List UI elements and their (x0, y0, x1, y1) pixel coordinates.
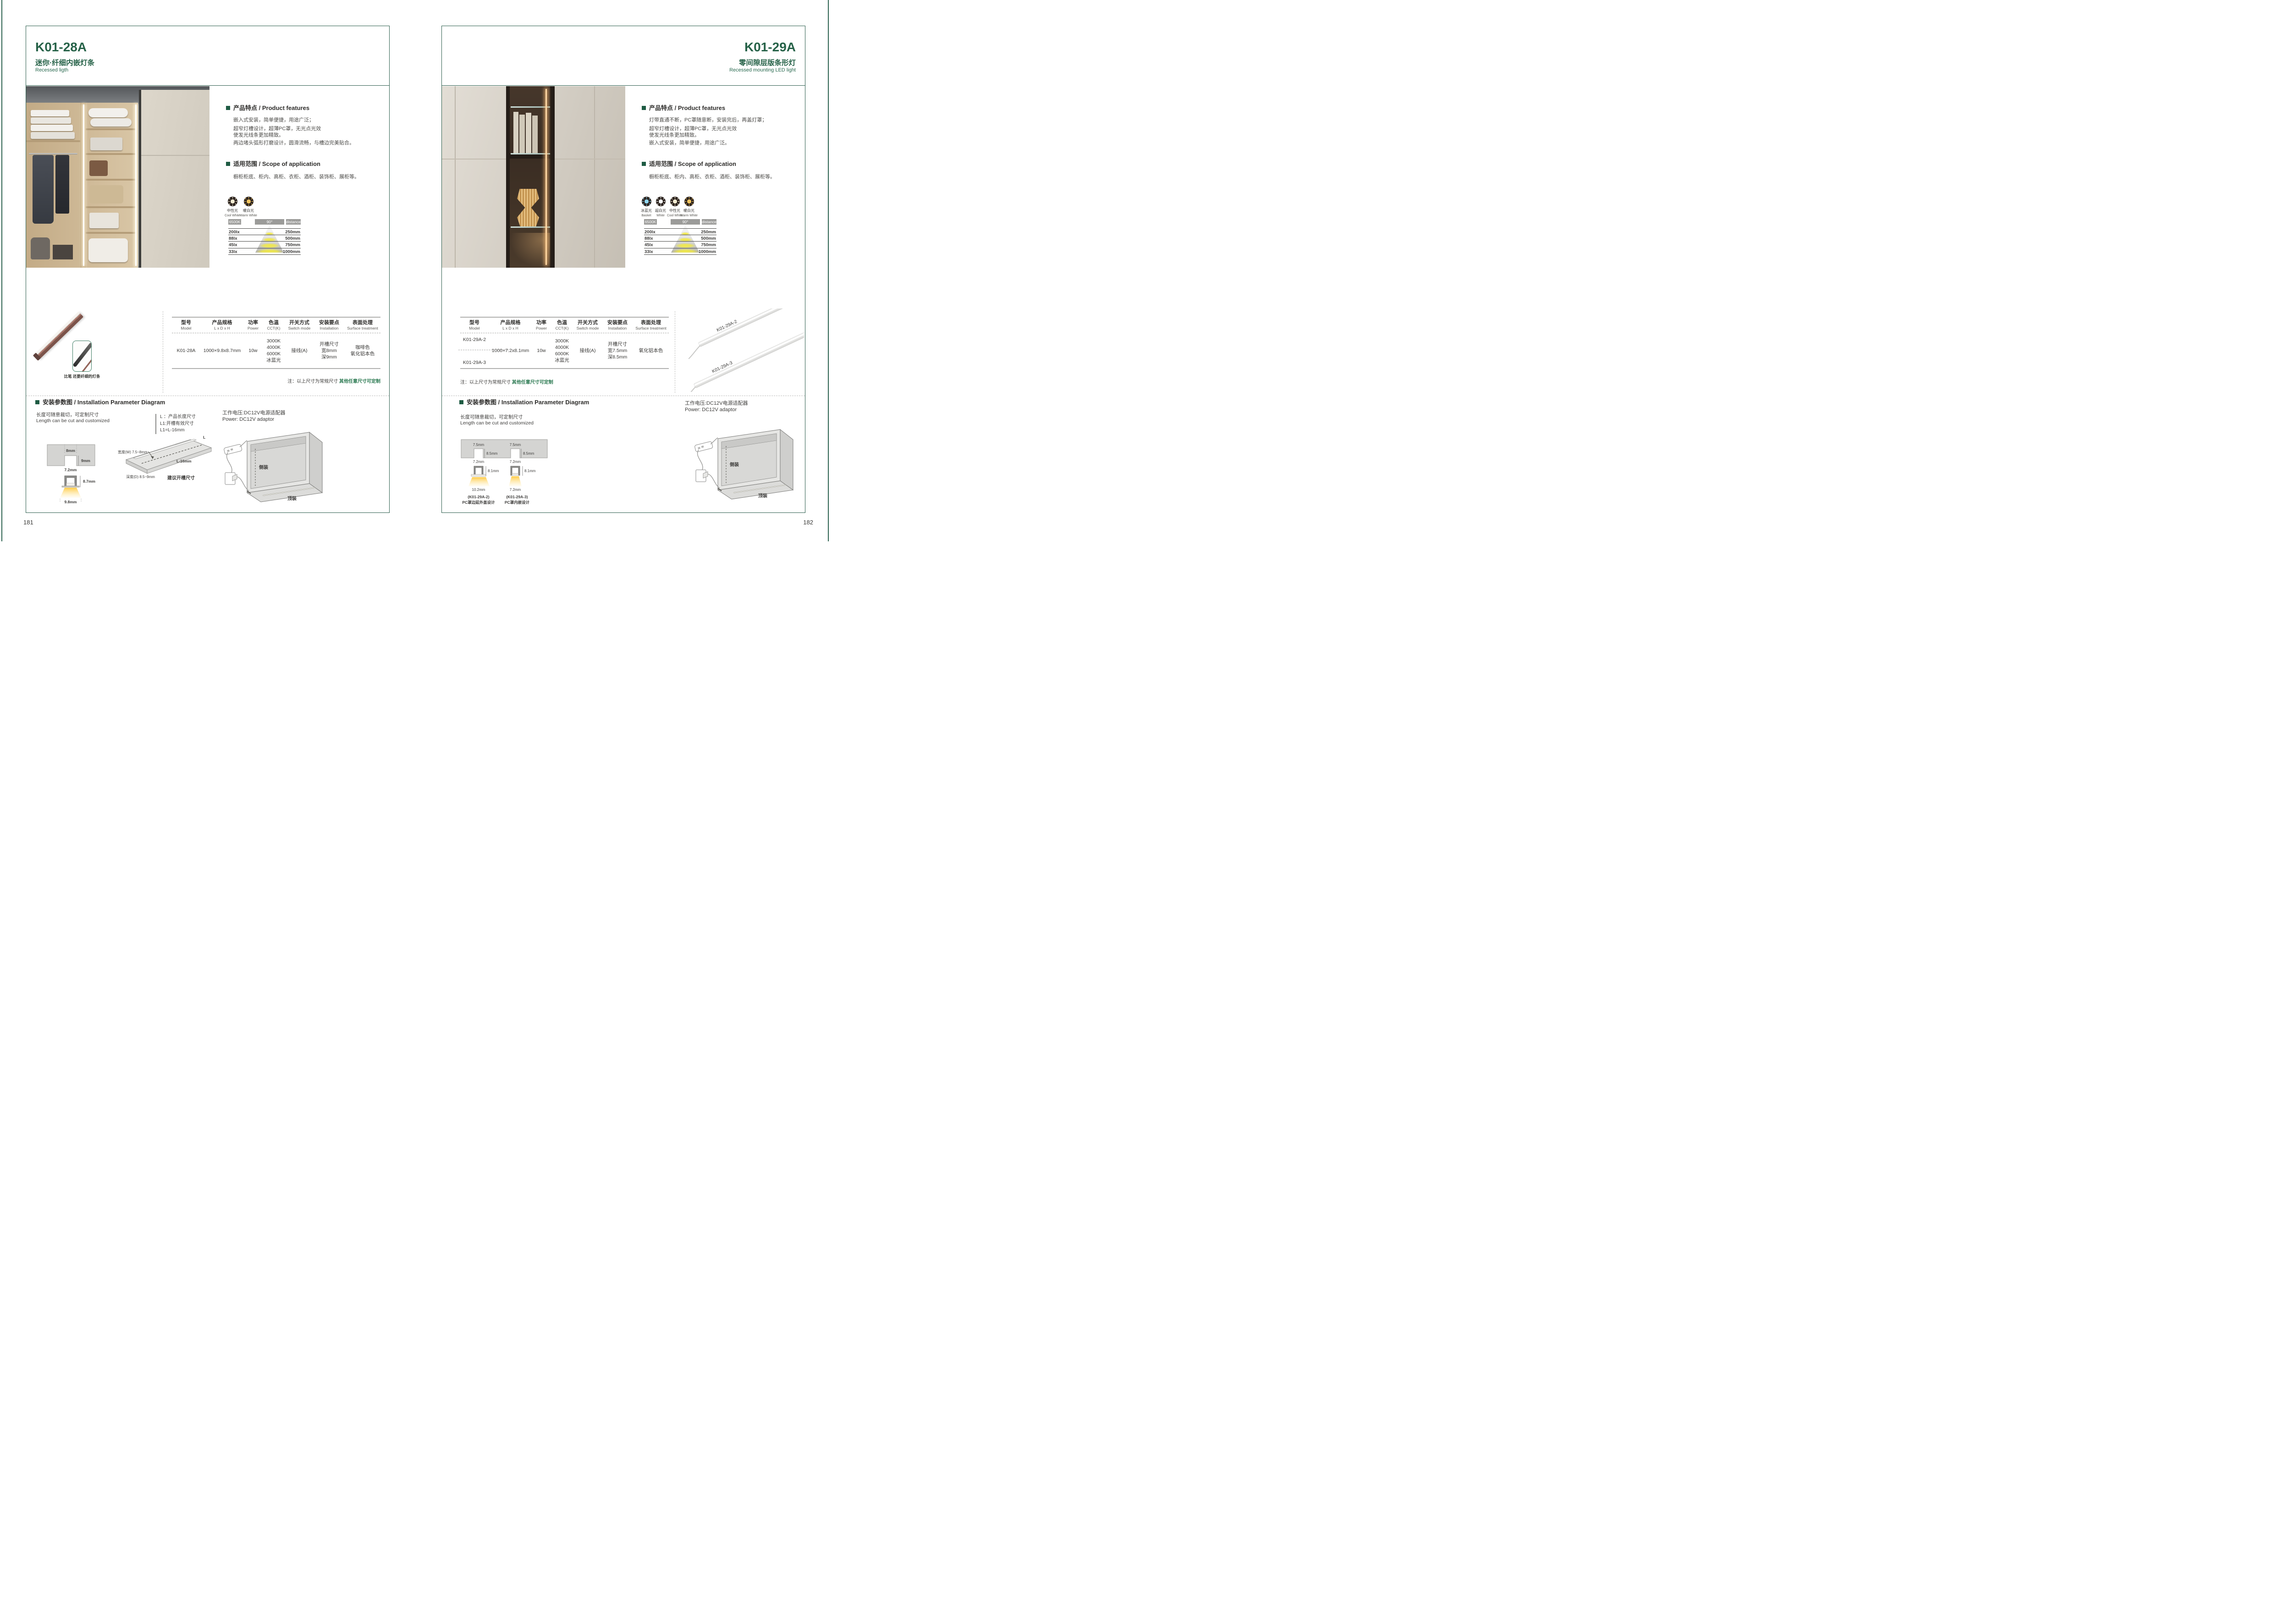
garment (55, 155, 69, 214)
chart-rows: 200lx250mm 88lx500mm 45lx750mm 33lx1000m… (228, 228, 301, 255)
cell-model: K01-28A (172, 347, 200, 354)
shelf (86, 179, 136, 181)
catalog-spread: K01-28A 迷你·纤细内嵌灯条 Recessed ligth (0, 0, 830, 541)
feature-line: 使发光线条更加精致。 (233, 131, 284, 138)
lux-value: 88lx (645, 236, 653, 241)
page-number: 182 (803, 519, 813, 526)
col-header-switch: 开关方式Switch mode (285, 320, 314, 331)
length-legend: L ：产品长度尺寸L1:开槽有效尺寸L1=L-16mm (155, 414, 196, 434)
svg-text:(K01-29A-3): (K01-29A-3) (506, 495, 528, 499)
distance-header: distance (702, 219, 716, 225)
svg-text:8.7mm: 8.7mm (83, 479, 95, 484)
lux-value: 45lx (229, 242, 237, 248)
beam-angle-header: 90° (671, 219, 700, 225)
niche-divider (510, 154, 550, 159)
distance-value: 1000mm (699, 249, 716, 254)
section-separator (26, 396, 389, 396)
col-header-install: 安装要点Installation (602, 320, 633, 331)
cell-models: K01-29A-2 K01-29A-3 (460, 335, 489, 367)
led-strip-light (135, 105, 137, 266)
cell-spec: 1000×9.8x8.7mm (200, 347, 244, 354)
icon-label-cn: 暖白光 (238, 208, 259, 213)
table-body-row: K01-29A-2 K01-29A-3 1000×7.2x8.1mm 10w 3… (460, 333, 669, 369)
table-header-row: 型号Model 产品规格L x D x H 功率Power 色温CCT(K) 开… (172, 317, 380, 333)
svg-text:PC罩边延外盖设计: PC罩边延外盖设计 (462, 500, 495, 505)
svg-text:8.5mm: 8.5mm (486, 451, 498, 456)
groove-cross-section-diagram: 8mm 9mm 7.2mm 8.7mm 9.8mm (39, 435, 103, 504)
double-cross-section-diagram: 7.5mm 7.5mm 8.5mm 8.5mm 7.2mm 7.2mm 8.1m… (459, 433, 551, 509)
pen-comparison-inset (72, 341, 92, 372)
col-header-spec: 产品规格L x D x H (200, 320, 244, 331)
length-note-en: Length can be cut and customized (460, 420, 534, 426)
panel-seam (442, 159, 509, 160)
table-note: 注：以上尺寸为常规尺寸 其他任意尺寸可定制 (460, 378, 553, 385)
cell-surface: 咖啡色氧化铝本色 (345, 344, 380, 357)
col-header-surface: 表面处理Surface treatment (345, 320, 380, 331)
chart-row: 33lx1000mm (644, 248, 716, 254)
section-separator (442, 396, 805, 396)
cell-cct: 3000K4000K 6000K冰蓝光 (262, 338, 285, 363)
install-title: 安装参数图 / Installation Parameter Diagram (43, 397, 165, 406)
power-note-cn: 工作电压:DC12V电源适配器 (222, 409, 286, 416)
section-bullet (226, 162, 230, 166)
suit (33, 155, 54, 224)
lux-value: 200lx (645, 230, 656, 235)
illuminance-chart: 6500K 90° distance 200lx250mm 88lx500mm … (228, 219, 301, 256)
svg-text:宽度(W) 7.5~8mm: 宽度(W) 7.5~8mm (118, 450, 148, 454)
cabinet-install-diagram: 侧装 顶装 (219, 423, 331, 511)
panel-seam (554, 159, 625, 160)
svg-text:L-16mm: L-16mm (176, 459, 192, 463)
feature-line: 两边堵头弧形打磨设计，圆滑流畅，与槽边完美贴合。 (233, 139, 354, 146)
left-edge-line (1, 0, 2, 541)
svg-text:侧装: 侧装 (730, 462, 739, 468)
sun-icon (656, 197, 666, 206)
section-bullet (642, 162, 646, 166)
col-header-surface: 表面处理Surface treatment (633, 320, 669, 331)
svg-text:7.2mm: 7.2mm (510, 460, 521, 464)
towel (31, 132, 75, 139)
distance-header: distance (286, 219, 301, 225)
shelf (26, 140, 80, 142)
section-bullet (459, 400, 463, 404)
feature-line: 使发光线条更加精致。 (649, 131, 700, 138)
cell-spec: 1000×7.2x8.1mm (489, 347, 532, 354)
page-subtitle-en: Recessed ligth (35, 67, 68, 73)
svg-text:8.1mm: 8.1mm (488, 469, 499, 473)
lux-value: 200lx (229, 230, 240, 235)
sun-icon (684, 197, 694, 206)
features-title: 产品特点 / Product features (649, 103, 725, 112)
distance-value: 750mm (701, 242, 716, 248)
towels (89, 213, 119, 228)
col-header-install: 安装要点Installation (314, 320, 345, 331)
cabinet-install-diagram: 侧装 顶装 (689, 420, 802, 508)
book (532, 116, 538, 154)
sun-icon (670, 197, 680, 206)
distance-value: 1000mm (283, 249, 300, 254)
glass-shelf (511, 106, 550, 108)
chart-row: 45lx750mm (644, 241, 716, 248)
power-note-en: Power: DC12V adaptor (222, 417, 274, 422)
svg-text:8mm: 8mm (66, 448, 75, 453)
glass-shelf (511, 226, 550, 228)
chart-row: 88lx500mm (644, 235, 716, 241)
cell-power: 10w (244, 347, 262, 354)
vertical-dashed-separator (163, 311, 163, 393)
feature-line: 嵌入式安装，简单便捷，用途广泛。 (649, 139, 730, 146)
svg-text:L: L (203, 435, 205, 440)
chart-row: 200lx250mm (644, 228, 716, 235)
distance-value: 500mm (285, 236, 300, 241)
scope-title: 适用范围 / Scope of application (233, 159, 320, 168)
svg-text:9mm: 9mm (81, 458, 90, 463)
box (53, 245, 73, 259)
section-bullet (642, 106, 646, 110)
shelf (86, 153, 136, 155)
svg-text:顶装: 顶装 (758, 493, 767, 499)
cell-install: 开槽尺寸宽8mm深9mm (314, 341, 345, 360)
features-title: 产品特点 / Product features (233, 103, 309, 112)
svg-text:(K01-29A-2): (K01-29A-2) (468, 495, 489, 499)
book (513, 112, 518, 154)
sliding-door (139, 90, 209, 268)
cell-install: 开槽尺寸宽7.5mm深8.5mm (602, 341, 633, 360)
col-header-power: 功率Power (244, 320, 262, 331)
svg-text:8.5mm: 8.5mm (523, 451, 534, 456)
svg-text:PC罩内嵌设计: PC罩内嵌设计 (505, 500, 530, 505)
table-body-row: K01-28A 1000×9.8x8.7mm 10w 3000K4000K 60… (172, 333, 380, 369)
scope-text: 橱柜柜底、柜内、高柜、衣柜、酒柜、装饰柜、展柜等。 (649, 173, 775, 180)
warm-white-icon: 暖白光 Warm White (679, 197, 699, 217)
cell-switch: 接线(A) (285, 347, 314, 354)
feature-line: 嵌入式安装，简单便捷，用途广泛； (233, 116, 314, 123)
svg-text:7.2mm: 7.2mm (65, 468, 77, 472)
lux-value: 33lx (645, 249, 653, 254)
panel-seam (455, 86, 456, 268)
warm-white-icon: 暖白光 Warm White (238, 197, 259, 217)
sun-icon (642, 197, 651, 206)
feature-line: 灯带直通不断，PC罩随意断，安装完后，再盖灯罩； (649, 116, 767, 123)
svg-text:侧装: 侧装 (259, 464, 268, 470)
sun-icon (228, 197, 237, 206)
bag (31, 237, 50, 259)
distance-value: 500mm (701, 236, 716, 241)
page-subtitle-cn: 迷你·纤细内嵌灯条 (35, 57, 94, 67)
pillow (88, 108, 128, 117)
col-header-cct: 色温CCT(K) (551, 320, 573, 331)
col-header-power: 功率Power (532, 320, 551, 331)
warm-glow (510, 233, 550, 268)
distance-value: 750mm (285, 242, 300, 248)
page-title: K01-28A (35, 40, 87, 55)
door-seam (141, 155, 209, 156)
install-title: 安装参数图 / Installation Parameter Diagram (467, 397, 589, 406)
towel (31, 125, 73, 131)
spec-table: 型号Model 产品规格L x D x H 功率Power 色温CCT(K) 开… (460, 317, 669, 369)
cell-switch: 接线(A) (573, 347, 602, 354)
glass-shelf (511, 153, 550, 154)
length-note-cn: 长度可随意裁切，可定制尺寸 (460, 413, 523, 420)
col-header-cct: 色温CCT(K) (262, 320, 285, 331)
col-header-model: 型号Model (460, 320, 489, 331)
table-header-row: 型号Model 产品规格L x D x H 功率Power 色温CCT(K) 开… (460, 317, 669, 333)
header-rule (26, 85, 389, 86)
chart-rows: 200lx250mm 88lx500mm 45lx750mm 33lx1000m… (644, 228, 716, 255)
sun-icon (244, 197, 253, 206)
cct-header: 6500K (228, 219, 241, 225)
svg-text:深度(D) 8.5~9mm: 深度(D) 8.5~9mm (126, 474, 155, 479)
chart-row: 33lx1000mm (228, 248, 301, 254)
svg-text:建议开槽尺寸: 建议开槽尺寸 (167, 475, 195, 481)
beam-angle-header: 90° (255, 219, 284, 225)
length-note-cn: 长度可随意裁切，可定制尺寸 (36, 411, 99, 418)
cct-header: 6500K (644, 219, 657, 225)
power-note-cn: 工作电压:DC12V电源适配器 (685, 399, 748, 407)
chart-row: 45lx750mm (228, 241, 301, 248)
svg-text:7.2mm: 7.2mm (473, 460, 485, 464)
icon-label-en: Warm White (680, 213, 698, 217)
wardrobe-photo (26, 86, 209, 268)
hanging-rod (29, 153, 77, 154)
page-right: K01-29A 零间隙层版条形灯 Recessed mounting LED l… (441, 26, 805, 513)
scope-text: 橱柜柜底、柜内、高柜、衣柜、酒柜、装饰柜、展柜等。 (233, 173, 359, 180)
svg-text:9.8mm: 9.8mm (65, 500, 77, 504)
chart-row: 200lx250mm (228, 228, 301, 235)
pillow (90, 118, 132, 127)
lux-value: 88lx (229, 236, 237, 241)
page-number: 181 (23, 519, 33, 526)
illuminance-chart: 6500K 90° distance 200lx250mm 88lx500mm … (644, 219, 716, 256)
page-title: K01-29A (744, 40, 796, 55)
col-header-switch: 开关方式Switch mode (573, 320, 602, 331)
page-subtitle-cn: 零间隙层版条形灯 (739, 57, 796, 67)
model-divider (458, 350, 509, 350)
shelf (86, 128, 136, 130)
page-subtitle-en: Recessed mounting LED light (729, 67, 796, 73)
led-strips-photo: K01-29A-2 K01-29A-3 (673, 308, 804, 392)
cell-surface: 氧化铝本色 (633, 347, 669, 354)
canvas-bag (89, 185, 123, 204)
col-header-spec: 产品规格L x D x H (489, 320, 532, 331)
panel-seam (594, 86, 595, 268)
header-rule (442, 85, 805, 86)
photo-caption: 比笔 还要纤细的灯条 (58, 374, 106, 379)
towel (31, 110, 69, 116)
shelf (86, 206, 136, 208)
svg-text:顶装: 顶装 (287, 495, 297, 501)
slot-size-board-diagram: L 宽度(W) 7.5~8mm L-16mm 深度(D) 8.5~9mm 建议开… (118, 433, 216, 481)
page-left: K01-28A 迷你·纤细内嵌灯条 Recessed ligth (26, 26, 390, 513)
cell-cct: 3000K4000K 6000K冰蓝光 (551, 338, 573, 363)
right-edge-line (828, 0, 829, 541)
section-bullet (226, 106, 230, 110)
col-header-model: 型号Model (172, 320, 200, 331)
distance-value: 250mm (701, 230, 716, 235)
spec-table: 型号Model 产品规格L x D x H 功率Power 色温CCT(K) 开… (172, 317, 380, 369)
chart-row: 88lx500mm (228, 235, 301, 241)
icon-label-en: Warm White (239, 213, 258, 217)
profile-end-cap (33, 352, 41, 361)
length-note-en: Length can be cut and customized (36, 418, 110, 424)
shelf (86, 232, 136, 234)
book (519, 115, 525, 154)
distance-value: 250mm (285, 230, 300, 235)
svg-text:10.2mm: 10.2mm (472, 488, 485, 492)
table-note: 注：以上尺寸为常规尺寸 其他任意尺寸可定制 (172, 377, 380, 384)
linen-pile (88, 238, 128, 262)
svg-text:7.5mm: 7.5mm (510, 443, 521, 447)
icon-label-cn: 暖白光 (679, 208, 699, 213)
power-note-en: Power: DC12V adaptor (685, 407, 737, 413)
scope-title: 适用范围 / Scope of application (649, 159, 736, 168)
display-cabinet-photo (442, 86, 625, 268)
book (526, 113, 531, 154)
svg-text:7.5mm: 7.5mm (473, 443, 485, 447)
svg-text:8.1mm: 8.1mm (524, 469, 536, 473)
lux-value: 45lx (645, 242, 653, 248)
leather-bag (89, 160, 108, 176)
folded-linen (90, 138, 122, 150)
section-bullet (35, 400, 39, 404)
svg-text:7.2mm: 7.2mm (510, 488, 521, 492)
towel (31, 117, 71, 124)
lux-value: 33lx (229, 249, 237, 254)
led-strip-light (83, 105, 84, 266)
cell-power: 10w (532, 347, 551, 354)
